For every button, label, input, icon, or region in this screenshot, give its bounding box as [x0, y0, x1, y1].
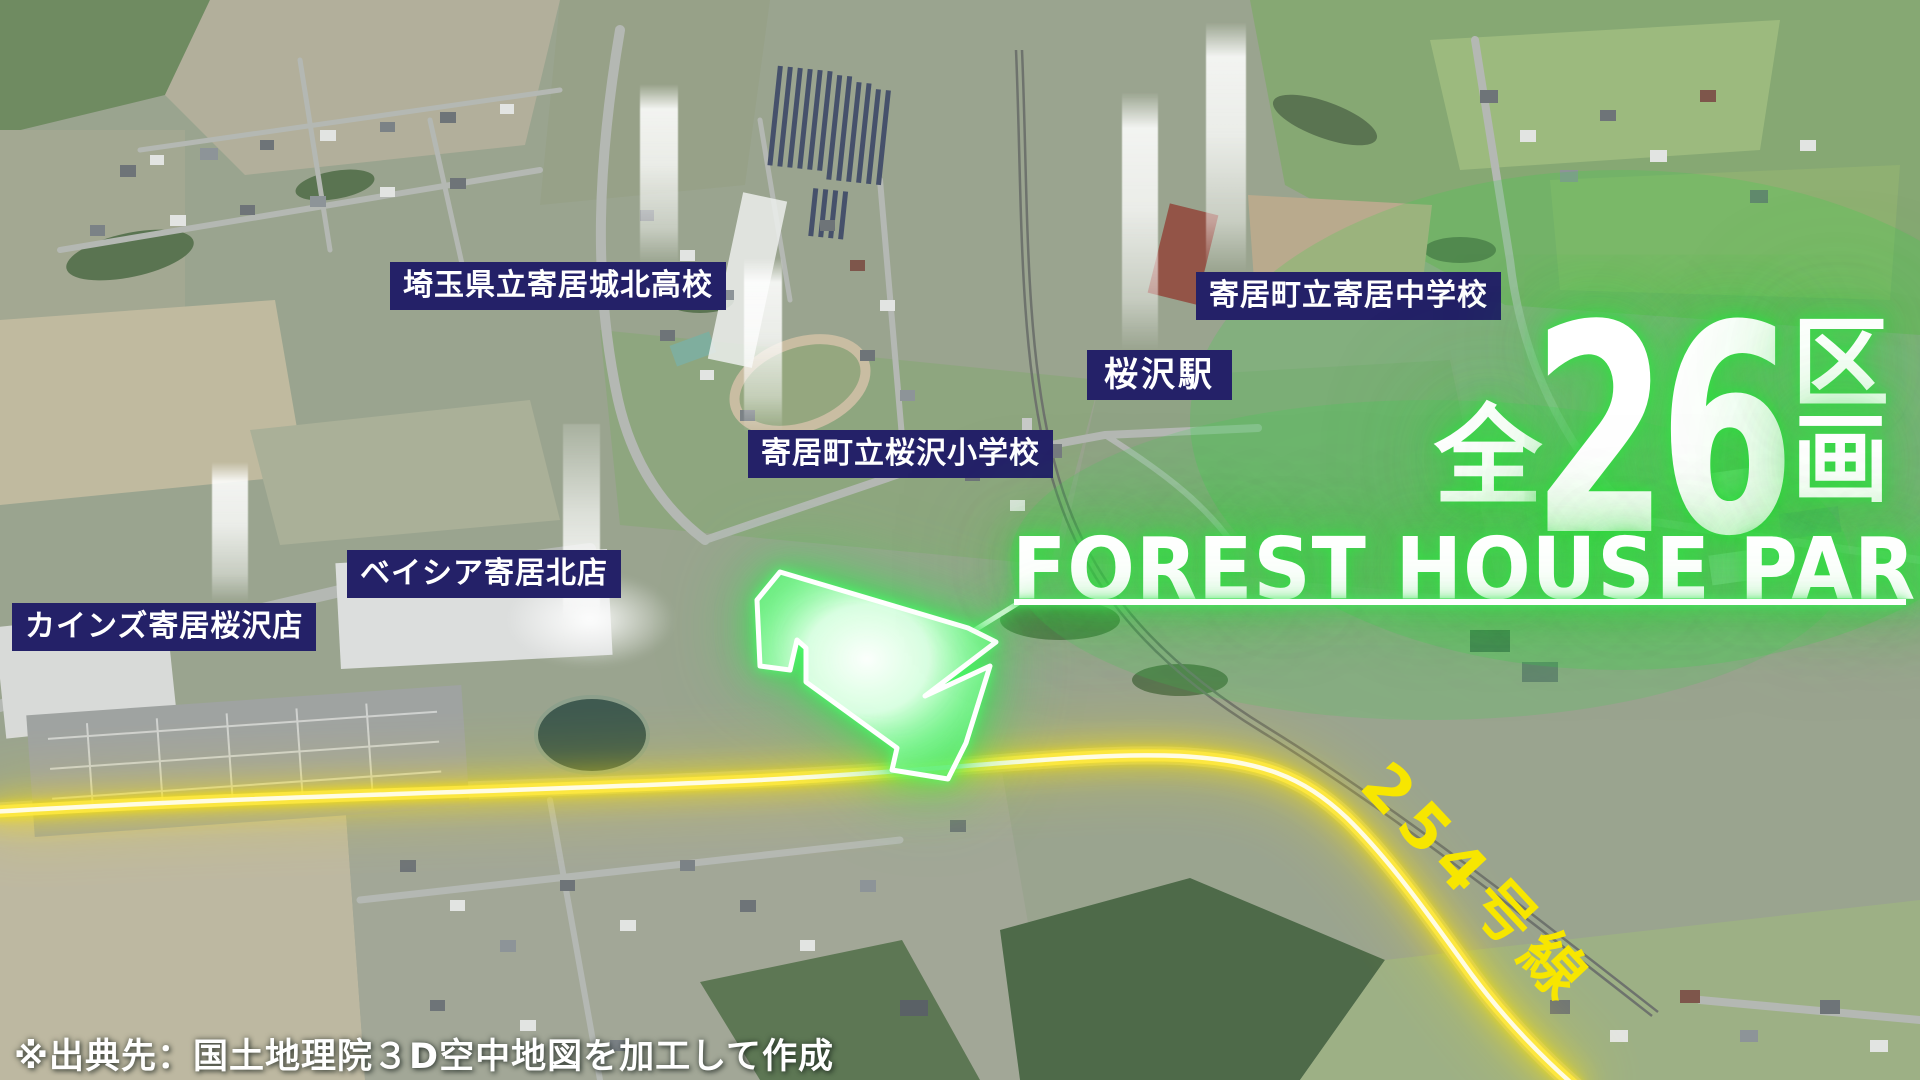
label-beisia: ベイシア寄居北店 — [347, 550, 621, 598]
label-johoku-high-school: 埼玉県立寄居城北高校 — [390, 262, 726, 310]
beam-yorii-junior-high — [1206, 22, 1246, 272]
aerial-map-stage: 埼玉県立寄居城北高校 寄居町立寄居中学校 桜沢駅 寄居町立桜沢小学校 ベイシア寄… — [0, 0, 1920, 1080]
beam-sakurazawa-elementary — [744, 258, 782, 432]
label-cainz: カインズ寄居桜沢店 — [12, 603, 316, 651]
label-sakurazawa-elementary: 寄居町立桜沢小学校 — [748, 430, 1053, 478]
label-yorii-junior-high: 寄居町立寄居中学校 — [1196, 272, 1501, 320]
pond — [536, 697, 648, 773]
label-sakurazawa-station: 桜沢駅 — [1087, 350, 1232, 400]
beam-johoku-high-school — [640, 84, 678, 264]
source-attribution: ※出典先：国土地理院３D空中地図を加工して作成 — [14, 1028, 834, 1079]
beam-sakurazawa-station — [1122, 92, 1158, 350]
headline-prefix: 全 — [1434, 404, 1542, 512]
project-name-underline — [1014, 599, 1906, 605]
beam-cainz — [212, 462, 248, 602]
headline-unit: 区 画 — [1792, 316, 1889, 508]
headline-unit-bottom: 画 — [1792, 403, 1889, 516]
